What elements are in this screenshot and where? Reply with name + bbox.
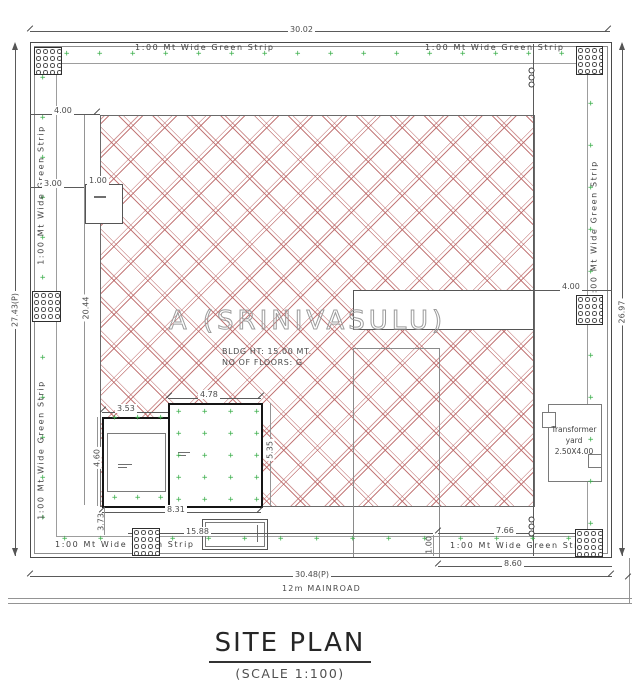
gate-outline <box>85 184 123 224</box>
green-plus-mark: + <box>202 430 207 439</box>
road-label: 12m MAINROAD <box>280 584 363 593</box>
electric-pole-icon <box>527 516 536 537</box>
dim-bldg-bottom: 8.31 <box>165 505 187 514</box>
green-plus-mark: + <box>588 100 593 109</box>
dim-bldg-left: 4.60 <box>93 447 102 469</box>
electric-pole-icon <box>527 67 536 88</box>
green-plus-mark: + <box>328 50 333 59</box>
pillar-block-top-right <box>576 46 603 75</box>
green-plus-mark: + <box>228 452 233 461</box>
dim-arrow <box>12 42 18 50</box>
title-block: SITE PLAN (SCALE 1:100) <box>160 628 420 681</box>
green-strip-label-right: 1:00 Mt Wide Green Strip <box>590 160 599 300</box>
dim-bldg-top-left: 3.53 <box>115 404 137 413</box>
green-strip-label-bottom-right: 1:00 Mt Wide Green Strip <box>450 541 590 550</box>
dim-arrow <box>619 548 625 556</box>
dim-bldg-right: 5.35 <box>266 439 275 461</box>
green-plus-mark: + <box>254 496 259 505</box>
green-plus-mark: + <box>97 50 102 59</box>
green-plus-mark: + <box>588 478 593 487</box>
pillar-block-mid-right <box>576 295 603 325</box>
dim-gate-offset: 3.00 <box>42 179 64 188</box>
green-plus-mark: + <box>588 394 593 403</box>
driveway-outline <box>353 348 440 557</box>
green-plus-mark: + <box>40 74 45 83</box>
green-plus-mark: + <box>228 474 233 483</box>
bldg-note-line1: BLDG HT: 15.00 MT. <box>222 346 312 357</box>
green-plus-mark: + <box>242 535 247 544</box>
green-plus-mark: + <box>588 142 593 151</box>
gate-annotation-mark <box>94 196 106 198</box>
dim-setback-top: 4.00 <box>52 106 74 115</box>
dim-left-height: 27.43(P) <box>11 291 20 329</box>
green-plus-mark: + <box>314 535 319 544</box>
green-plus-mark: + <box>350 535 355 544</box>
road-side-line <box>629 558 630 604</box>
room-outline <box>107 433 166 492</box>
site-plan-canvas: Transformer yard 2.50X4.00 30.02 27.43(P… <box>0 0 640 700</box>
plot-division-line <box>533 44 534 556</box>
scale-note: (SCALE 1:100) <box>160 666 420 681</box>
dim-drive-width: 7.66 <box>494 526 516 535</box>
green-plus-mark: + <box>228 430 233 439</box>
green-plus-mark: + <box>64 50 69 59</box>
green-plus-mark: + <box>176 430 181 439</box>
dim-line-yard-width <box>128 533 433 534</box>
green-plus-mark: + <box>158 414 163 423</box>
green-plus-mark: + <box>202 408 207 417</box>
green-plus-mark: + <box>202 496 207 505</box>
green-plus-mark: + <box>135 494 140 503</box>
green-plus-mark: + <box>278 535 283 544</box>
green-strip-label-top-left: 1:00 Mt Wide Green Strip <box>135 43 275 52</box>
green-strip-label-left-lower: 1:00 Mt Wide Green Strip <box>37 380 46 520</box>
green-plus-mark: + <box>228 496 233 505</box>
green-plus-mark: + <box>254 408 259 417</box>
green-plus-mark: + <box>135 414 140 423</box>
green-plus-mark: + <box>158 494 163 503</box>
dim-line-road-frontage <box>438 566 612 567</box>
road-edge-line <box>8 598 632 599</box>
room-annotation-mark <box>118 467 127 468</box>
dim-right-height: 26.97 <box>618 299 627 326</box>
dim-road-frontage: 8.60 <box>502 559 524 568</box>
green-strip-label-left-upper: 1:00 Mt Wide Green Strip <box>37 125 46 265</box>
green-plus-mark: + <box>206 535 211 544</box>
pillar-block-bottom-left <box>132 528 160 556</box>
road-edge-line <box>8 603 632 604</box>
green-plus-mark: + <box>176 408 181 417</box>
green-plus-mark: + <box>386 535 391 544</box>
green-plus-mark: + <box>254 452 259 461</box>
dim-setback-right: 4.00 <box>560 282 582 291</box>
dim-plot-depth: 20.44 <box>82 295 91 322</box>
pillar-block-mid-left <box>32 291 61 322</box>
room-annotation-mark <box>118 464 132 465</box>
green-plus-mark: + <box>202 474 207 483</box>
green-plus-mark: + <box>112 414 117 423</box>
dim-bldg-south-offset: 3.73 <box>97 511 106 533</box>
dim-arrow <box>619 42 625 50</box>
owner-name-label: A (SRINIVASULU) <box>165 306 450 336</box>
dim-bldg-top-right: 4.78 <box>198 390 220 399</box>
page-title: SITE PLAN <box>209 628 372 663</box>
transformer-yard-label: Transformer yard 2.50X4.00 <box>546 424 602 457</box>
dim-line-top <box>30 31 610 32</box>
dim-top-width: 30.02 <box>288 25 315 34</box>
dim-bottom-width: 30.48(P) <box>293 570 331 579</box>
dim-gate-width: 1.00 <box>87 176 109 185</box>
green-plus-mark: + <box>40 354 45 363</box>
green-plus-mark: + <box>254 430 259 439</box>
green-plus-mark: + <box>228 408 233 417</box>
green-plus-mark: + <box>112 494 117 503</box>
green-plus-mark: + <box>176 452 181 461</box>
dim-tick <box>625 573 631 579</box>
bldg-note-line2: NO OF FLOORS: G <box>222 357 303 368</box>
green-strip-label-top-right: 1:00 Mt Wide Green Strip <box>425 43 565 52</box>
green-plus-mark: + <box>40 114 45 123</box>
structure-outline-inner <box>205 522 265 547</box>
green-plus-mark: + <box>202 452 207 461</box>
dim-strip-width: 1.00 <box>425 534 434 556</box>
green-plus-mark: + <box>176 496 181 505</box>
green-plus-mark: + <box>40 274 45 283</box>
pillar-block-bottom-right <box>575 529 603 557</box>
green-plus-mark: + <box>176 474 181 483</box>
green-plus-mark: + <box>295 50 300 59</box>
green-plus-mark: + <box>588 352 593 361</box>
green-plus-mark: + <box>361 50 366 59</box>
green-plus-mark: + <box>394 50 399 59</box>
pillar-block-top-left <box>34 47 62 75</box>
dim-yard-width: 15.88 <box>184 527 211 536</box>
green-plus-mark: + <box>588 520 593 529</box>
green-strip-label-bottom-left: 1:00 Mt Wide Green Strip <box>55 540 195 549</box>
dim-arrow <box>12 548 18 556</box>
green-plus-mark: + <box>254 474 259 483</box>
